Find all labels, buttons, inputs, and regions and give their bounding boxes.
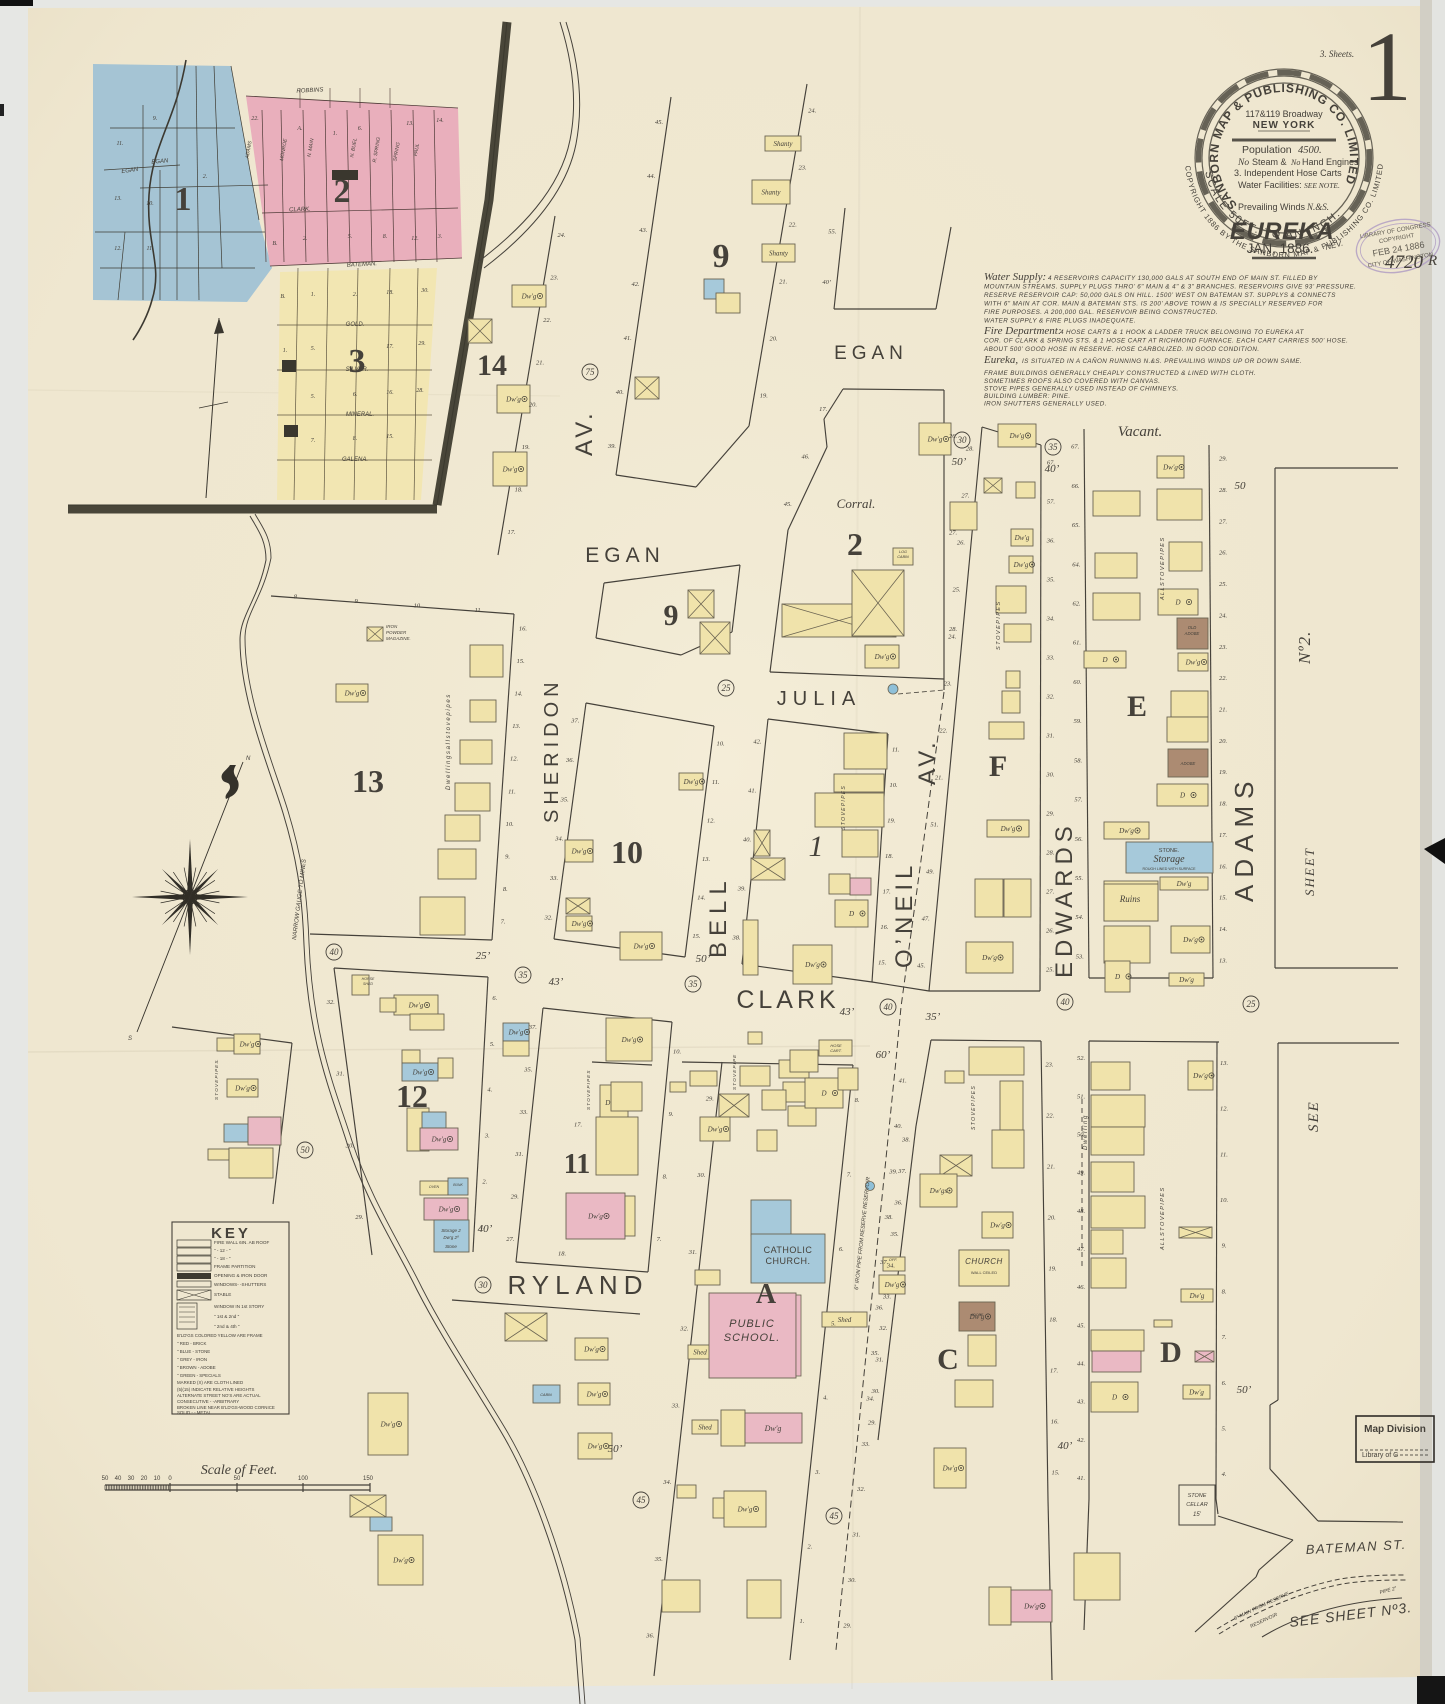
svg-text:27.: 27.: [506, 1236, 515, 1243]
svg-text:9: 9: [713, 238, 730, 275]
svg-text:36.: 36.: [1046, 538, 1056, 545]
svg-text:SOLID - - METAL: SOLID - - METAL: [177, 1410, 212, 1415]
svg-text:SILVER.: SILVER.: [346, 367, 369, 373]
svg-text:2: 2: [847, 526, 863, 562]
svg-text:17.: 17.: [386, 344, 394, 350]
svg-text:54.: 54.: [1075, 914, 1084, 921]
svg-text:No: No: [1290, 158, 1300, 167]
svg-text:Steam &: Steam &: [1252, 157, 1287, 167]
svg-text:A.: A.: [296, 126, 302, 132]
svg-text:CHURCH: CHURCH: [965, 1257, 1003, 1266]
svg-text:31.: 31.: [1045, 733, 1055, 740]
svg-text:20.: 20.: [529, 402, 538, 409]
svg-text:WALL CEILED: WALL CEILED: [971, 1270, 997, 1275]
svg-text:30: 30: [128, 1476, 135, 1482]
svg-text:35: 35: [688, 979, 699, 989]
svg-text:38.: 38.: [732, 935, 742, 942]
svg-text:67.: 67.: [1047, 460, 1056, 467]
svg-text:11: 11: [564, 1149, 590, 1180]
svg-text:CATHOLIC: CATHOLIC: [764, 1245, 813, 1255]
svg-text:ABOUT 500’ GOOD HOSE IN RESERV: ABOUT 500’ GOOD HOSE IN RESERVE. HOSE CA…: [983, 346, 1260, 353]
svg-text:Dw'g: Dw'g: [707, 1126, 723, 1134]
svg-text:47.: 47.: [922, 916, 931, 923]
svg-text:52.: 52.: [1077, 1055, 1086, 1062]
svg-text:3: 3: [349, 343, 366, 380]
svg-text:7.: 7.: [311, 438, 316, 444]
svg-text:41.: 41.: [748, 788, 757, 795]
svg-text:D: D: [1179, 792, 1185, 800]
svg-text:2.: 2.: [203, 174, 208, 180]
svg-text:FRAME BUILDINGS GENERALLY CHEA: FRAME BUILDINGS GENERALLY CHEAPLY CONSTR…: [984, 370, 1256, 377]
svg-text:25: 25: [1247, 999, 1257, 1009]
svg-text:1.: 1.: [311, 292, 316, 298]
svg-text:Prevailing Winds: Prevailing Winds: [1238, 202, 1306, 212]
svg-text:BUILDING LUMBER: PINE.: BUILDING LUMBER: PINE.: [984, 393, 1070, 400]
svg-text:JULIA: JULIA: [777, 688, 861, 710]
svg-text:D w e l l i n g s a l l s: D w e l l i n g s a l l s t o v e p i p …: [446, 695, 452, 790]
svg-text:B.: B.: [280, 294, 285, 300]
svg-text:Fire Department:: Fire Department:: [983, 325, 1062, 337]
svg-text:30.: 30.: [847, 1577, 857, 1584]
svg-text:25.: 25.: [952, 587, 961, 594]
svg-text:42.: 42.: [1077, 1437, 1086, 1444]
svg-text:5.: 5.: [490, 1041, 495, 1048]
svg-text:A: A: [756, 1279, 777, 1310]
svg-text:14.: 14.: [1219, 926, 1228, 933]
svg-text:S T O V E P I P E S: S T O V E P I P E S: [841, 786, 847, 830]
svg-text:5.: 5.: [831, 1320, 836, 1327]
svg-text:Dw'g: Dw'g: [633, 943, 649, 951]
svg-text:Shanty: Shanty: [761, 189, 781, 197]
svg-text:57.: 57.: [1047, 499, 1056, 506]
svg-text:28.: 28.: [966, 446, 975, 453]
svg-text:1.: 1.: [283, 348, 288, 354]
svg-text:35’: 35’: [925, 1011, 941, 1023]
svg-text:18.: 18.: [1049, 1317, 1058, 1324]
svg-text:55.: 55.: [1075, 875, 1084, 882]
svg-text:40: 40: [330, 947, 340, 957]
svg-text:Storage 2: Storage 2: [441, 1228, 461, 1233]
svg-text:5.: 5.: [311, 394, 316, 400]
svg-text:35.: 35.: [523, 1067, 533, 1074]
svg-text:Stone: Stone: [445, 1244, 457, 1249]
svg-text:CELLAR: CELLAR: [1186, 1502, 1207, 1508]
svg-text:17.: 17.: [1219, 832, 1228, 839]
svg-text:25’: 25’: [476, 950, 491, 962]
svg-text:Dw'gs: Dw'gs: [929, 1187, 948, 1195]
svg-text:Dw'g: Dw'g: [586, 1391, 602, 1399]
svg-text:50’: 50’: [952, 456, 967, 468]
svg-text:55.: 55.: [828, 228, 837, 235]
svg-text:61.: 61.: [1073, 640, 1082, 647]
svg-text:11.: 11.: [712, 779, 720, 786]
svg-text:12.: 12.: [707, 817, 716, 824]
svg-text:43.: 43.: [639, 227, 648, 234]
svg-text:Dw'g: Dw'g: [571, 920, 587, 928]
svg-text:Dw'g: Dw'g: [505, 396, 521, 404]
svg-text:45.: 45.: [784, 501, 793, 508]
svg-text:3.: 3.: [437, 234, 443, 240]
svg-text:Dw'g: Dw'g: [1023, 1603, 1039, 1611]
svg-text:O’NEIL: O’NEIL: [891, 861, 918, 968]
svg-text:45.: 45.: [917, 963, 926, 970]
svg-text:20.: 20.: [769, 336, 778, 343]
svg-text:50’: 50’: [1237, 1384, 1252, 1396]
svg-text:7.: 7.: [1222, 1334, 1227, 1341]
svg-text:13.: 13.: [702, 856, 711, 863]
svg-text:SHED: SHED: [363, 982, 373, 986]
svg-text:Ruins: Ruins: [1119, 894, 1141, 904]
svg-text:49.: 49.: [926, 869, 935, 876]
svg-text:HORSE: HORSE: [362, 977, 375, 981]
svg-text:Dw'g: Dw'g: [1013, 561, 1029, 569]
svg-text:18.: 18.: [515, 486, 524, 493]
svg-text:22.: 22.: [789, 222, 798, 229]
svg-text:31.: 31.: [874, 1357, 884, 1364]
svg-text:15.: 15.: [1219, 895, 1228, 902]
svg-text:48.: 48.: [1077, 1208, 1086, 1215]
svg-text:43.: 43.: [1077, 1399, 1086, 1406]
svg-text:STOVE PIPES GENERALLY USED INS: STOVE PIPES GENERALLY USED INSTEAD OF CH…: [984, 386, 1179, 393]
svg-text:11: 11: [475, 607, 481, 614]
svg-text:51.: 51.: [1077, 1093, 1086, 1100]
svg-text:50: 50: [234, 1476, 241, 1482]
svg-text:Dw'g: Dw'g: [571, 848, 587, 856]
svg-text:Corral.: Corral.: [837, 496, 876, 511]
svg-text:62.: 62.: [1073, 600, 1082, 607]
svg-text:LOG: LOG: [899, 550, 907, 554]
svg-text:25: 25: [722, 683, 732, 693]
svg-text:GOLD.: GOLD.: [346, 322, 365, 328]
svg-text:16.: 16.: [386, 390, 394, 396]
svg-text:Dw'g: Dw'g: [438, 1206, 454, 1214]
svg-text:FRAME PARTITION: FRAME PARTITION: [214, 1264, 255, 1269]
svg-text:ALTERNATE STREET NO'S ARE ACTU: ALTERNATE STREET NO'S ARE ACTUAL: [177, 1393, 261, 1398]
svg-text:36.: 36.: [645, 1633, 655, 1640]
svg-text:Dw'g: Dw'g: [380, 1421, 396, 1429]
svg-text:10.: 10.: [506, 821, 515, 828]
svg-text:49.: 49.: [1077, 1170, 1086, 1177]
svg-text:9.: 9.: [1222, 1243, 1227, 1250]
svg-text:Dw'g: Dw'g: [502, 466, 518, 474]
svg-text:33.: 33.: [1046, 655, 1056, 662]
svg-text:1.: 1.: [480, 1224, 485, 1231]
svg-text:117&119 Broadway: 117&119 Broadway: [1245, 109, 1323, 119]
svg-text:BUNK: BUNK: [453, 1183, 463, 1187]
svg-text:6.: 6.: [353, 392, 358, 398]
svg-text:38.: 38.: [901, 1137, 911, 1144]
svg-text:SEE: SEE: [1306, 1100, 1322, 1132]
svg-text:Dw'g: Dw'g: [884, 1281, 900, 1289]
svg-text:29.: 29.: [706, 1095, 715, 1102]
svg-text:50’: 50’: [696, 953, 711, 965]
svg-text:27.: 27.: [949, 530, 958, 537]
svg-text:6.: 6.: [1222, 1380, 1227, 1387]
svg-text:ADOBE: ADOBE: [1180, 761, 1196, 766]
svg-text:10: 10: [611, 834, 643, 870]
svg-text:23.: 23.: [1045, 1062, 1054, 1069]
svg-text:17.: 17.: [1050, 1368, 1059, 1375]
svg-text:PUBLIC: PUBLIC: [729, 1318, 775, 1330]
svg-text:51.: 51.: [930, 822, 939, 829]
svg-text:5.: 5.: [1222, 1425, 1227, 1432]
svg-text:RESERVE RESERVOIR CAP: 50,000: RESERVE RESERVOIR CAP: 50,000 GALS ON HI…: [984, 292, 1336, 299]
svg-text:37.: 37.: [879, 1259, 889, 1266]
svg-text:17.: 17.: [883, 888, 892, 895]
svg-text:4500.: 4500.: [1298, 145, 1322, 156]
svg-text:22.: 22.: [251, 116, 259, 122]
svg-text:Shed: Shed: [693, 1349, 707, 1357]
svg-text:14.: 14.: [697, 894, 706, 901]
svg-text:29.: 29.: [868, 1419, 877, 1426]
svg-text:JAN, 1886.: JAN, 1886.: [1247, 241, 1314, 256]
svg-text:" GREEN - SPECIALS: " GREEN - SPECIALS: [177, 1373, 221, 1378]
svg-text:8.: 8.: [663, 1173, 668, 1180]
svg-text:58.: 58.: [1074, 757, 1083, 764]
svg-text:7.: 7.: [657, 1236, 662, 1243]
svg-text:18.: 18.: [386, 290, 394, 296]
svg-text:15.: 15.: [386, 434, 394, 440]
svg-text:S T O V E P I P E S: S T O V E P I P E S: [586, 1071, 591, 1110]
svg-text:33.: 33.: [671, 1402, 681, 1409]
svg-text:100: 100: [298, 1476, 309, 1482]
svg-text:29.: 29.: [418, 341, 426, 347]
svg-text:FIRE PURPOSES. A 200,000: FIRE PURPOSES. A 200,000 GAL. RESERVOIR …: [984, 309, 1218, 316]
svg-text:16.: 16.: [519, 625, 528, 632]
svg-text:30.: 30.: [420, 288, 429, 294]
svg-text:44.: 44.: [647, 173, 656, 180]
svg-text:40: 40: [1061, 997, 1071, 1007]
svg-text:13.: 13.: [406, 121, 414, 127]
svg-text:Dw'g: Dw'g: [804, 961, 820, 969]
svg-text:43’: 43’: [840, 1006, 855, 1018]
svg-text:Dw'g: Dw'g: [621, 1036, 637, 1044]
svg-text:" - 18 - ": " - 18 - ": [214, 1256, 231, 1261]
svg-text:Dw'g: Dw'g: [1189, 1292, 1205, 1300]
svg-text:40.: 40.: [616, 389, 625, 396]
svg-text:AV.: AV.: [571, 409, 598, 456]
svg-text:24.: 24.: [557, 232, 566, 239]
svg-text:19.: 19.: [522, 444, 531, 451]
svg-text:16.: 16.: [1051, 1419, 1060, 1426]
svg-text:12.: 12.: [510, 756, 519, 763]
svg-text:20.: 20.: [1048, 1215, 1057, 1222]
svg-text:6.: 6.: [839, 1246, 844, 1253]
svg-text:28.: 28.: [949, 626, 958, 633]
svg-text:MARKED (X) ARE CLOTH LINED: MARKED (X) ARE CLOTH LINED: [177, 1380, 243, 1385]
svg-text:29.: 29.: [355, 1214, 364, 1221]
svg-text:SEE NOTE.: SEE NOTE.: [1304, 181, 1340, 190]
svg-text:STONE: STONE: [1188, 1493, 1207, 1499]
svg-text:" GREY - IRON: " GREY - IRON: [177, 1357, 207, 1362]
svg-text:26.: 26.: [1219, 550, 1228, 557]
svg-text:MINERAL.: MINERAL.: [346, 412, 374, 418]
svg-text:POWDER: POWDER: [386, 630, 407, 635]
svg-text:19.: 19.: [1048, 1266, 1057, 1273]
svg-text:Dw'g: Dw'g: [1188, 1389, 1204, 1397]
svg-text:40’: 40’: [1058, 1440, 1073, 1452]
svg-text:15.: 15.: [878, 959, 887, 966]
svg-text:19.: 19.: [887, 818, 896, 825]
svg-text:59.: 59.: [1074, 718, 1083, 725]
svg-text:47.: 47.: [1077, 1246, 1086, 1253]
svg-text:Dw'g: Dw'g: [1176, 880, 1192, 888]
svg-text:" RED - BRICK: " RED - BRICK: [177, 1341, 206, 1346]
svg-text:31.: 31.: [688, 1249, 698, 1256]
svg-text:29.: 29.: [1219, 456, 1228, 463]
svg-text:22.: 22.: [543, 317, 552, 324]
svg-text:S T O V E P I P E S: S T O V E P I P E S: [996, 601, 1002, 650]
svg-text:37.: 37.: [528, 1024, 538, 1031]
svg-text:CHURCH.: CHURCH.: [766, 1256, 811, 1266]
svg-text:28.: 28.: [1219, 487, 1228, 494]
svg-text:SCHOOL.: SCHOOL.: [724, 1332, 781, 1344]
svg-text:15.: 15.: [692, 933, 701, 940]
svg-text:20.: 20.: [1219, 738, 1228, 745]
svg-text:4.: 4.: [487, 1087, 492, 1094]
svg-text:IRON: IRON: [386, 624, 398, 629]
svg-text:WINDOWS- -SHUTTERS: WINDOWS- -SHUTTERS: [214, 1282, 266, 1287]
svg-text:39.: 39.: [737, 886, 747, 893]
svg-text:OLD: OLD: [1188, 625, 1197, 630]
svg-text:34.: 34.: [865, 1395, 875, 1402]
svg-text:32.: 32.: [1045, 694, 1055, 701]
svg-text:Map Division: Map Division: [1364, 1424, 1426, 1435]
svg-text:11.: 11.: [146, 246, 153, 252]
svg-text:45.: 45.: [655, 119, 664, 126]
svg-text:D: D: [1174, 599, 1180, 607]
svg-text:27.: 27.: [961, 493, 970, 500]
svg-text:57.: 57.: [1074, 797, 1083, 804]
svg-text:3.: 3.: [484, 1132, 490, 1139]
svg-text:D: D: [1114, 973, 1120, 981]
svg-text:34.: 34.: [662, 1479, 672, 1486]
svg-text:IS SITUATED IN A CAÑON RUNNING: IS SITUATED IN A CAÑON RUNNING N.&S. PRE…: [1022, 356, 1302, 365]
svg-text:D: D: [820, 1090, 826, 1098]
svg-text:10.: 10.: [1220, 1197, 1229, 1204]
svg-text:21.: 21.: [536, 359, 545, 366]
svg-text:18.: 18.: [885, 853, 894, 860]
svg-text:" BLUE - STONE: " BLUE - STONE: [177, 1349, 210, 1354]
svg-text:37.: 37.: [570, 718, 580, 725]
svg-text:2.: 2.: [807, 1543, 812, 1550]
svg-text:39.: 39.: [888, 1168, 898, 1175]
svg-text:NEW YORK: NEW YORK: [1253, 120, 1316, 131]
svg-text:56.: 56.: [1075, 836, 1084, 843]
svg-text:53.: 53.: [1076, 953, 1085, 960]
svg-text:Dw'g: Dw'g: [1182, 936, 1198, 944]
svg-text:11.: 11.: [1220, 1151, 1228, 1158]
svg-text:6.: 6.: [358, 126, 363, 132]
svg-text:32.: 32.: [326, 999, 336, 1006]
svg-text:20: 20: [141, 1476, 148, 1482]
svg-text:1.: 1.: [333, 131, 338, 137]
svg-text:14: 14: [477, 349, 507, 382]
svg-text:Dw'g: Dw'g: [1118, 827, 1134, 835]
svg-text:COR. OF CLARK & SPRING STS. &: COR. OF CLARK & SPRING STS. & 1 HOSE CAR…: [984, 338, 1348, 345]
svg-text:S: S: [128, 1036, 132, 1042]
svg-text:22.: 22.: [939, 728, 948, 735]
svg-text:13.: 13.: [1219, 957, 1228, 964]
svg-text:21.: 21.: [935, 775, 944, 782]
svg-text:Dw'g: Dw'g: [683, 778, 699, 786]
svg-text:35: 35: [1048, 442, 1059, 452]
svg-text:26.: 26.: [949, 433, 958, 440]
svg-text:32.: 32.: [544, 914, 554, 921]
svg-text:30.: 30.: [345, 1142, 355, 1149]
svg-text:23.: 23.: [944, 681, 953, 688]
svg-text:Population: Population: [1242, 144, 1292, 156]
svg-text:4.: 4.: [1222, 1471, 1227, 1478]
svg-text:IRON SHUTTERS GENERALLY USED.: IRON SHUTTERS GENERALLY USED.: [984, 401, 1107, 408]
svg-text:8.: 8.: [353, 436, 358, 442]
svg-text:19.: 19.: [760, 393, 769, 400]
svg-text:Dw'g: Dw'g: [587, 1443, 603, 1451]
svg-text:23.: 23.: [798, 165, 807, 172]
svg-text:S T O V E P I P E S.: S T O V E P I P E S.: [214, 1059, 219, 1100]
svg-text:3. Sheets.: 3. Sheets.: [1319, 49, 1354, 59]
svg-text:4.: 4.: [823, 1395, 828, 1402]
svg-text:" - 12 - ": " - 12 - ": [214, 1248, 231, 1253]
svg-text:8.: 8.: [1222, 1288, 1227, 1295]
svg-text:32.: 32.: [679, 1326, 689, 1333]
svg-text:1: 1: [809, 830, 824, 863]
svg-text:F: F: [989, 750, 1007, 783]
svg-text:75: 75: [586, 367, 596, 377]
svg-text:D: D: [848, 910, 854, 918]
svg-text:8.: 8.: [383, 234, 388, 240]
svg-text:30.: 30.: [871, 1388, 881, 1395]
svg-text:24.: 24.: [948, 634, 957, 641]
svg-text:66.: 66.: [1071, 483, 1080, 490]
svg-text:WATER SUPPLY & FIRE PLUGS INAD: WATER SUPPLY & FIRE PLUGS INADEQUATE.: [984, 318, 1136, 325]
svg-text:SHEET: SHEET: [1302, 847, 1317, 896]
svg-text:B'LD'GS COLORED YELLOW ARE FRA: B'LD'GS COLORED YELLOW ARE FRAME: [177, 1333, 263, 1338]
svg-text:34.: 34.: [1046, 616, 1056, 623]
svg-text:3.: 3.: [814, 1469, 820, 1476]
svg-text:33.: 33.: [519, 1109, 529, 1116]
svg-text:13: 13: [352, 763, 384, 799]
svg-text:21.: 21.: [779, 279, 788, 286]
svg-text:A L L S T O V E P I P E S: A L L S T O V E P I P E S: [1160, 1188, 1166, 1251]
svg-text:N: N: [246, 756, 251, 762]
svg-text:Dw'g: Dw'g: [583, 1346, 599, 1354]
svg-text:14.: 14.: [514, 691, 523, 698]
svg-text:4720: 4720: [1385, 252, 1424, 273]
svg-text:16.: 16.: [880, 924, 889, 931]
svg-text:Dw'g: Dw'g: [737, 1506, 753, 1514]
svg-text:12: 12: [396, 1078, 428, 1114]
svg-text:12.: 12.: [411, 236, 419, 242]
svg-text:Water Facilities:: Water Facilities:: [1238, 180, 1302, 190]
svg-text:25.: 25.: [1046, 967, 1055, 974]
svg-text:36.: 36.: [565, 757, 575, 764]
svg-text:7.: 7.: [501, 919, 506, 926]
svg-text:Hand Engines: Hand Engines: [1302, 157, 1359, 167]
svg-text:Dw'g: Dw'g: [1009, 432, 1025, 440]
svg-text:31.: 31.: [335, 1071, 345, 1078]
svg-text:Dw'g: Dw'g: [989, 1222, 1005, 1230]
svg-text:Dw'g: Dw'g: [521, 293, 537, 301]
svg-text:10.: 10.: [146, 201, 154, 207]
svg-text:43’: 43’: [549, 976, 564, 988]
svg-text:50’: 50’: [608, 1443, 623, 1455]
svg-text:67.: 67.: [1071, 444, 1080, 451]
svg-text:Eureka,: Eureka,: [983, 354, 1018, 366]
svg-text:35.: 35.: [890, 1231, 900, 1238]
svg-text:Shanty: Shanty: [769, 250, 789, 258]
svg-text:WITH 6" MAIN AT COR. MAIN & BA: WITH 6" MAIN AT COR. MAIN & BATEMAN STS.…: [984, 301, 1323, 308]
